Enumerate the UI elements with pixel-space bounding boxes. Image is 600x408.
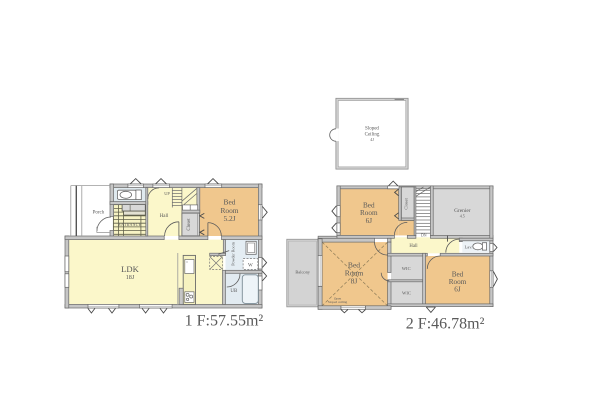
svg-text:WIC: WIC (402, 291, 411, 296)
svg-text:Porch: Porch (93, 211, 105, 216)
svg-text:Lav.: Lav. (465, 245, 473, 250)
svg-text:18J: 18J (126, 274, 135, 281)
svg-text:Powder Room: Powder Room (230, 241, 235, 265)
svg-text:LDK: LDK (121, 264, 139, 274)
svg-text:UB: UB (230, 289, 238, 294)
svg-text:6J: 6J (454, 285, 461, 293)
svg-text:5.2J: 5.2J (223, 214, 235, 223)
svg-text:1 F:57.55m²: 1 F:57.55m² (185, 313, 264, 330)
svg-text:4.5: 4.5 (460, 214, 465, 219)
svg-text:W: W (248, 263, 253, 268)
svg-text:Sloped: Sloped (365, 127, 379, 132)
svg-text:ENTRANCE: ENTRANCE (117, 222, 141, 227)
svg-text:Hall: Hall (409, 244, 418, 249)
svg-text:Closet: Closet (187, 218, 192, 231)
svg-text:2 F:46.78m²: 2 F:46.78m² (406, 316, 485, 333)
svg-text:Hall: Hall (160, 214, 169, 219)
svg-text:4J: 4J (370, 137, 374, 142)
svg-text:WIC: WIC (402, 266, 411, 271)
svg-text:6J: 6J (366, 217, 373, 225)
svg-text:Balcony: Balcony (295, 270, 310, 275)
svg-text:Closet: Closet (404, 197, 409, 209)
svg-text:DN: DN (421, 233, 427, 237)
svg-text:UP: UP (164, 191, 170, 196)
svg-text:8J: 8J (351, 277, 358, 286)
svg-text:Sloped ceiling: Sloped ceiling (328, 300, 348, 304)
